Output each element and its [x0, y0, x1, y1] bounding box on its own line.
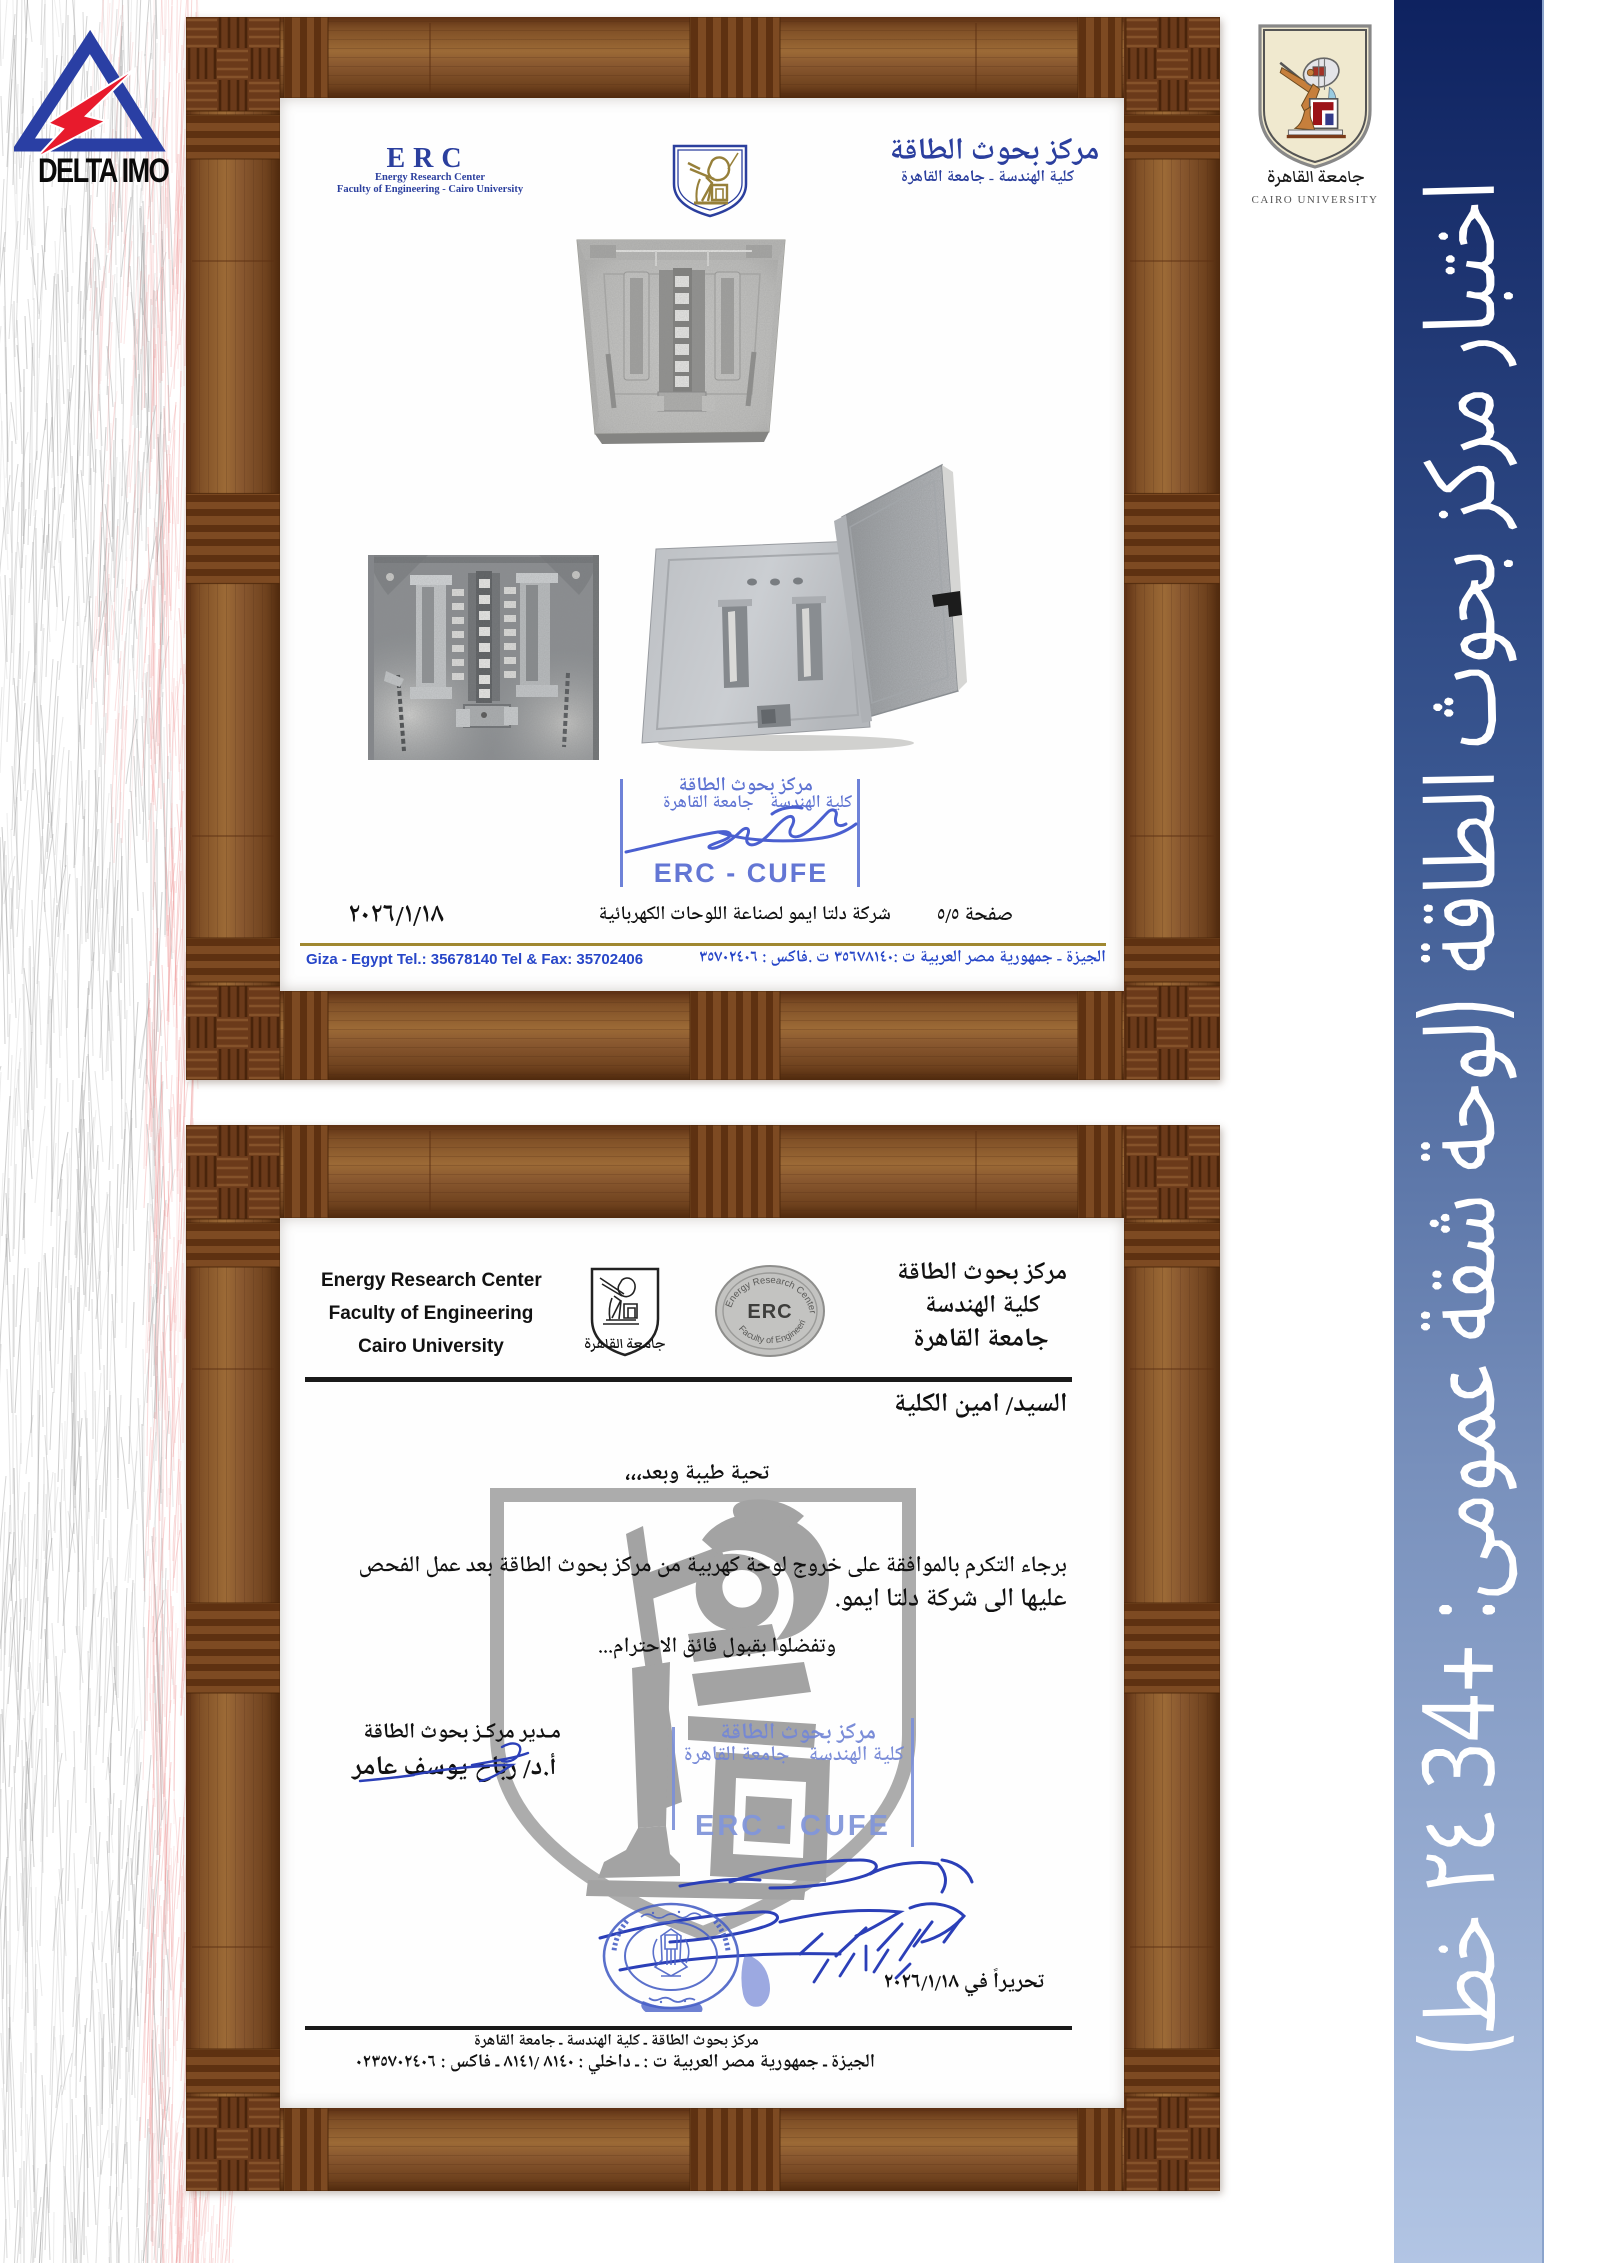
svg-text:ERC: ERC: [747, 1301, 792, 1323]
